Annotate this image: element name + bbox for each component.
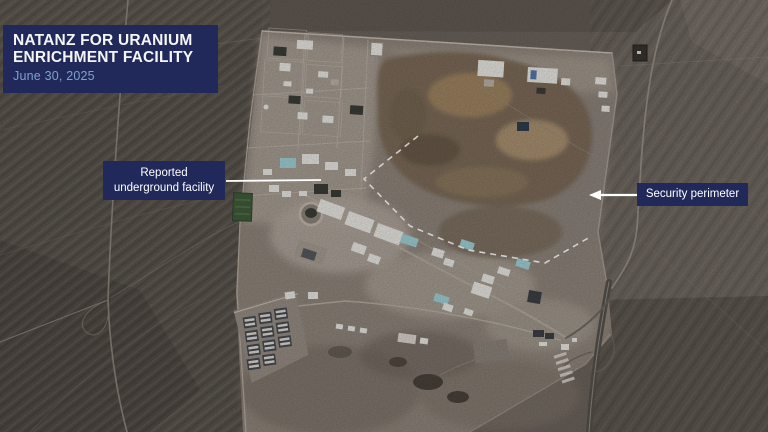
perimeter-label-text: Security perimeter	[646, 187, 739, 202]
natanz-satellite-infographic: NATANZ FOR URANIUM ENRICHMENT FACILITY J…	[0, 0, 768, 432]
security-perimeter-label: Security perimeter	[637, 183, 748, 206]
title-line-2: ENRICHMENT FACILITY	[13, 49, 208, 66]
underground-leader-line	[226, 180, 321, 181]
title-date: June 30, 2025	[13, 69, 208, 83]
underground-label-line-1: Reported	[140, 166, 187, 181]
title-line-1: NATANZ FOR URANIUM	[13, 32, 208, 49]
underground-label-line-2: underground facility	[114, 181, 214, 196]
underground-facility-label: Reported underground facility	[103, 161, 225, 200]
title-card: NATANZ FOR URANIUM ENRICHMENT FACILITY J…	[3, 25, 218, 93]
